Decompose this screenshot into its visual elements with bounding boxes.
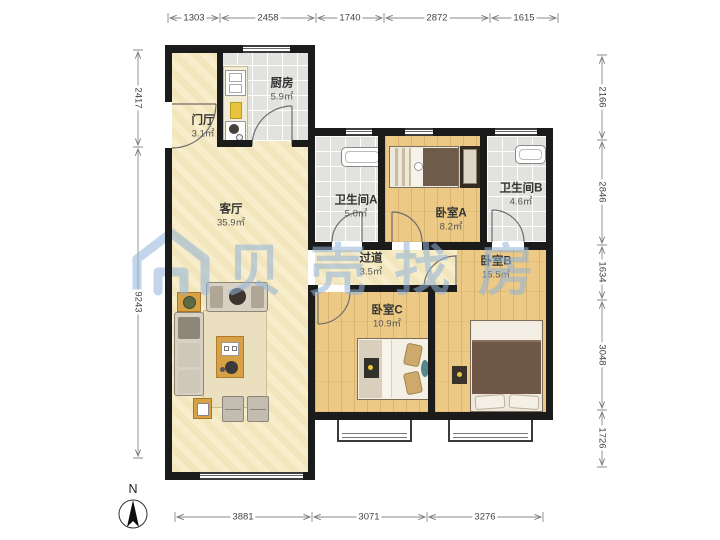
room-name: 过道 bbox=[360, 251, 383, 266]
label-bedroom-b: 卧室B 15.5㎡ bbox=[480, 254, 511, 281]
room-area: 5.9㎡ bbox=[271, 91, 294, 103]
wall-mid-vertical-upper bbox=[308, 45, 315, 250]
dim-right-1: 2846 bbox=[597, 179, 608, 204]
bay-sill bbox=[453, 433, 528, 438]
window-bathroom-b bbox=[495, 128, 537, 136]
window-kitchen bbox=[243, 45, 290, 53]
dim-top-1: 2458 bbox=[255, 13, 280, 24]
dim-right-0: 2166 bbox=[597, 84, 608, 109]
room-area: 3.1㎡ bbox=[192, 128, 215, 140]
room-area: 8.2㎡ bbox=[435, 221, 466, 233]
dim-right-2: 1634 bbox=[597, 259, 608, 284]
wall-midband-4 bbox=[524, 242, 553, 250]
dim-bottom-0: 3881 bbox=[230, 512, 255, 523]
wall-bedC-bedB bbox=[428, 292, 435, 412]
room-area: 5.0㎡ bbox=[335, 208, 378, 220]
dim-top-0: 1303 bbox=[181, 13, 206, 24]
door-bathroom-b bbox=[492, 210, 524, 242]
dim-bottom-1: 3071 bbox=[356, 512, 381, 523]
dim-top-2: 1740 bbox=[337, 13, 362, 24]
window-bathroom-a bbox=[346, 128, 372, 136]
wall-hallway-bottom-2 bbox=[350, 285, 457, 292]
room-name: 卧室C bbox=[371, 303, 402, 318]
room-area: 4.6㎡ bbox=[500, 196, 543, 208]
window-living bbox=[200, 472, 303, 480]
bay-sill bbox=[342, 433, 407, 438]
wall-left-upper bbox=[165, 45, 172, 102]
dim-left-0: 2417 bbox=[133, 85, 144, 110]
dim-right-4: 1726 bbox=[597, 425, 608, 450]
wall-mid-vertical-lower bbox=[308, 285, 315, 480]
door-bedroom-c bbox=[318, 292, 350, 324]
room-name: 厨房 bbox=[271, 76, 294, 91]
wall-midband-3 bbox=[422, 242, 492, 250]
dim-top-4: 1615 bbox=[511, 13, 536, 24]
window-bedroom-a bbox=[405, 128, 433, 136]
door-bedroom-b bbox=[424, 255, 456, 288]
bay-window-bedroom-b bbox=[448, 420, 533, 442]
room-area: 15.5㎡ bbox=[480, 269, 511, 281]
label-bathroom-b: 卫生间B 4.6㎡ bbox=[500, 181, 543, 208]
wall-right bbox=[546, 128, 553, 420]
room-name: 卫生间A bbox=[335, 193, 378, 208]
label-bedroom-a: 卧室A 8.2㎡ bbox=[435, 206, 466, 233]
room-area: 3.5㎡ bbox=[360, 266, 383, 278]
north-label: N bbox=[128, 482, 137, 496]
wall-midband-2 bbox=[362, 242, 392, 250]
label-hallway: 过道 3.5㎡ bbox=[360, 251, 383, 278]
door-bedroom-a bbox=[392, 212, 422, 242]
dim-left-1: 9243 bbox=[133, 289, 144, 314]
dim-right-3: 3048 bbox=[597, 342, 608, 367]
wall-kitchen-bottom-1 bbox=[217, 140, 252, 147]
room-name: 客厅 bbox=[217, 202, 245, 217]
label-entry: 门厅 3.1㎡ bbox=[192, 113, 215, 140]
wall-midband-1 bbox=[308, 242, 332, 250]
bay-window-bedroom-c bbox=[337, 420, 412, 442]
floor-plan: 门厅 3.1㎡ 厨房 5.9㎡ 客厅 35.9㎡ 卫生间A 5.0㎡ 卧室A 8… bbox=[0, 0, 720, 540]
label-living: 客厅 35.9㎡ bbox=[217, 202, 245, 229]
wall-entry-kitchen bbox=[217, 53, 223, 143]
room-name: 门厅 bbox=[192, 113, 215, 128]
label-kitchen: 厨房 5.9㎡ bbox=[271, 76, 294, 103]
room-name: 卧室B bbox=[480, 254, 511, 269]
wall-bathA-bedA bbox=[378, 136, 385, 250]
room-area: 10.9㎡ bbox=[371, 318, 402, 330]
wall-left-lower bbox=[165, 148, 172, 480]
door-kitchen bbox=[252, 106, 292, 146]
dim-bottom-2: 3276 bbox=[472, 512, 497, 523]
room-area: 35.9㎡ bbox=[217, 217, 245, 229]
label-bathroom-a: 卫生间A 5.0㎡ bbox=[335, 193, 378, 220]
label-bedroom-c: 卧室C 10.9㎡ bbox=[371, 303, 402, 330]
room-name: 卧室A bbox=[435, 206, 466, 221]
compass bbox=[119, 500, 147, 528]
room-name: 卫生间B bbox=[500, 181, 543, 196]
wall-bedrooms-bottom bbox=[308, 412, 553, 420]
wall-bedA-bathB bbox=[480, 136, 487, 250]
wall-kitchen-bottom-2 bbox=[292, 140, 308, 147]
dim-top-3: 2872 bbox=[424, 13, 449, 24]
wall-hallway-bottom-1 bbox=[308, 285, 318, 292]
wall-top-left bbox=[165, 45, 315, 53]
